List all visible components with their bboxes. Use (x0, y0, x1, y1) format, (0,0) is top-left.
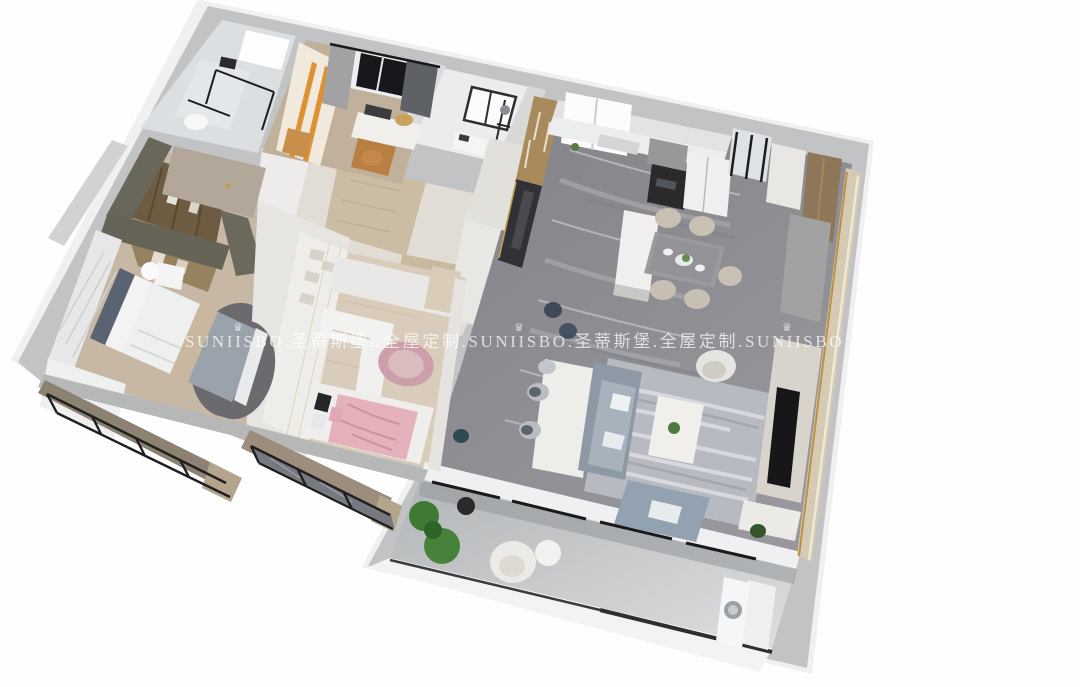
svg-text:♛: ♛ (514, 322, 524, 334)
svg-text:♛: ♛ (233, 322, 243, 334)
svg-text:♛: ♛ (782, 322, 792, 334)
svg-text:SUNIISBO.圣蒂斯堡..全屋定制.SUNIISBO.圣: SUNIISBO.圣蒂斯堡..全屋定制.SUNIISBO.圣蒂斯堡.全屋定制.S… (185, 332, 844, 351)
